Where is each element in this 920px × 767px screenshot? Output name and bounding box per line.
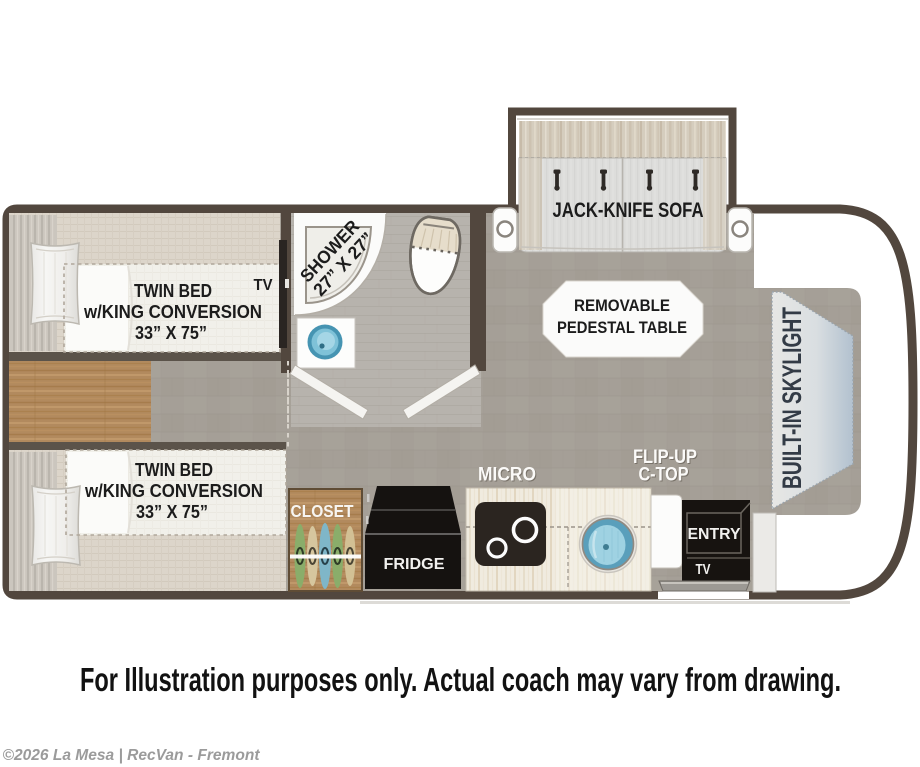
- svg-text:TWIN BED: TWIN BED: [135, 459, 213, 480]
- svg-text:MICRO: MICRO: [478, 465, 536, 486]
- svg-text:33” X 75”: 33” X 75”: [136, 501, 208, 522]
- svg-text:©2026 La Mesa | RecVan - Fremo: ©2026 La Mesa | RecVan - Fremont: [3, 747, 261, 764]
- svg-text:PEDESTAL TABLE: PEDESTAL TABLE: [557, 318, 687, 337]
- svg-text:C-TOP: C-TOP: [639, 465, 689, 486]
- svg-text:CLOSET: CLOSET: [291, 501, 354, 521]
- svg-text:w/KING CONVERSION: w/KING CONVERSION: [84, 480, 263, 501]
- svg-text:REMOVABLE: REMOVABLE: [574, 296, 670, 315]
- svg-text:TV: TV: [254, 277, 273, 294]
- svg-text:33” X 75”: 33” X 75”: [135, 322, 207, 343]
- svg-text:ENTRY: ENTRY: [688, 526, 742, 543]
- svg-text:TV: TV: [696, 562, 711, 578]
- svg-text:BUILT-IN SKYLIGHT: BUILT-IN SKYLIGHT: [777, 307, 807, 489]
- svg-text:w/KING CONVERSION: w/KING CONVERSION: [83, 301, 262, 322]
- svg-text:JACK-KNIFE SOFA: JACK-KNIFE SOFA: [553, 198, 704, 222]
- svg-text:TWIN BED: TWIN BED: [134, 280, 212, 301]
- svg-text:FRIDGE: FRIDGE: [384, 556, 445, 573]
- svg-text:For Illustration purposes only: For Illustration purposes only. Actual c…: [80, 661, 841, 698]
